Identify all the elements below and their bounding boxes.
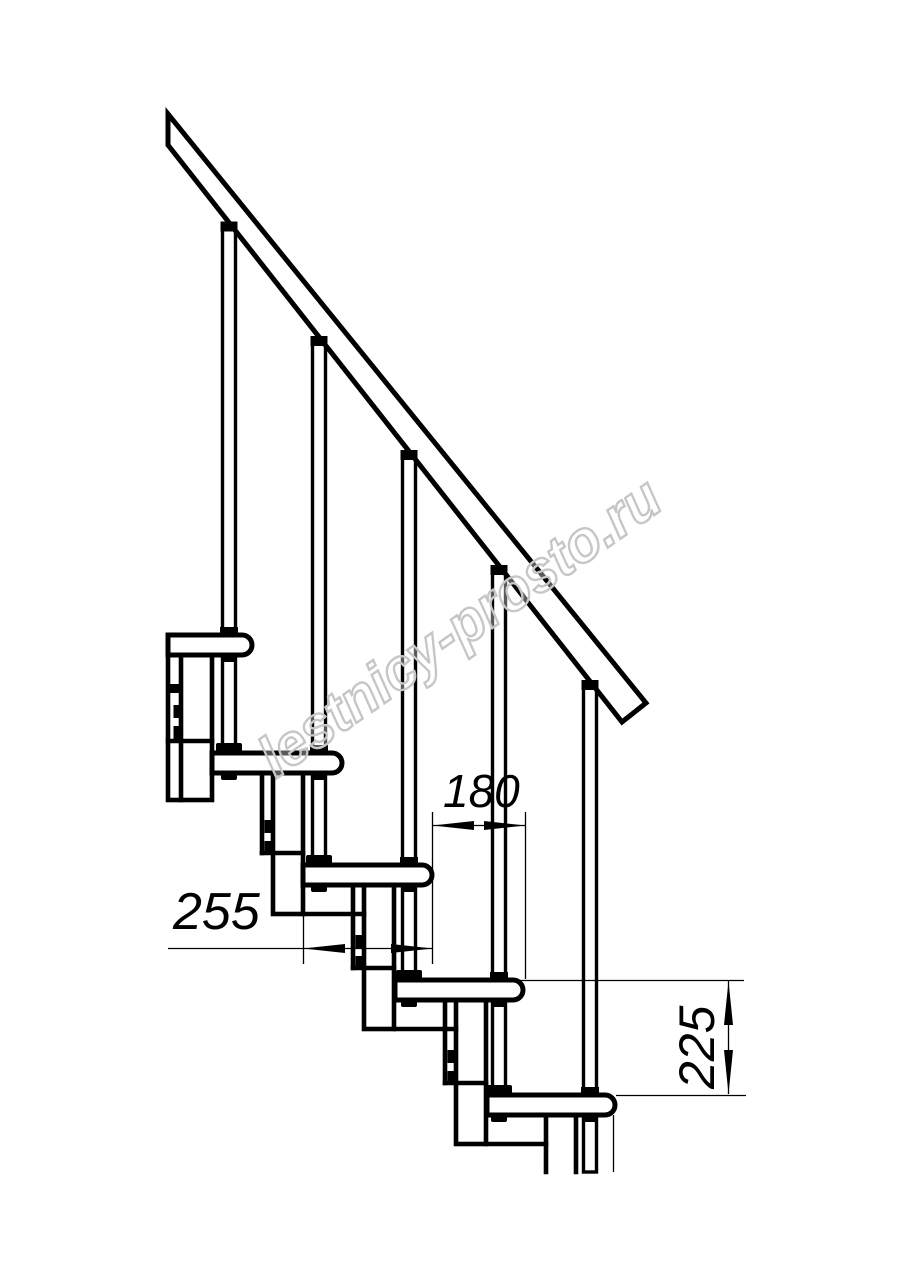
dimension-step-rise: 225 — [518, 981, 746, 1096]
baluster-flange — [216, 743, 242, 753]
baluster-flange — [306, 855, 332, 865]
tread-5 — [487, 1095, 615, 1115]
module-2 — [262, 773, 303, 914]
baluster-flange — [396, 970, 422, 980]
module-4 — [395, 1000, 486, 1144]
baluster-1 — [223, 229, 236, 748]
baluster-2 — [313, 344, 326, 860]
dimension-label-225: 225 — [669, 1005, 725, 1090]
tread-3 — [303, 865, 432, 885]
dimension-label-255: 255 — [172, 883, 261, 941]
baluster-4 — [493, 573, 506, 1092]
tread-4 — [395, 980, 523, 1000]
rail-collar-5 — [582, 680, 599, 690]
module-3 — [303, 885, 394, 1029]
dimension-label-180: 180 — [443, 765, 520, 817]
rail-collar-2 — [311, 336, 328, 346]
staircase-technical-drawing: 255 180 225 lestnicy-prosto.ru — [0, 0, 914, 1280]
baluster-flange — [486, 1085, 512, 1095]
tread-1 — [168, 635, 252, 655]
dimension-step-run: 180 — [433, 765, 526, 979]
rail-collar-1 — [221, 222, 238, 232]
rail-collar-3 — [401, 450, 418, 460]
module-1 — [167, 655, 212, 800]
baluster-3 — [403, 458, 416, 975]
